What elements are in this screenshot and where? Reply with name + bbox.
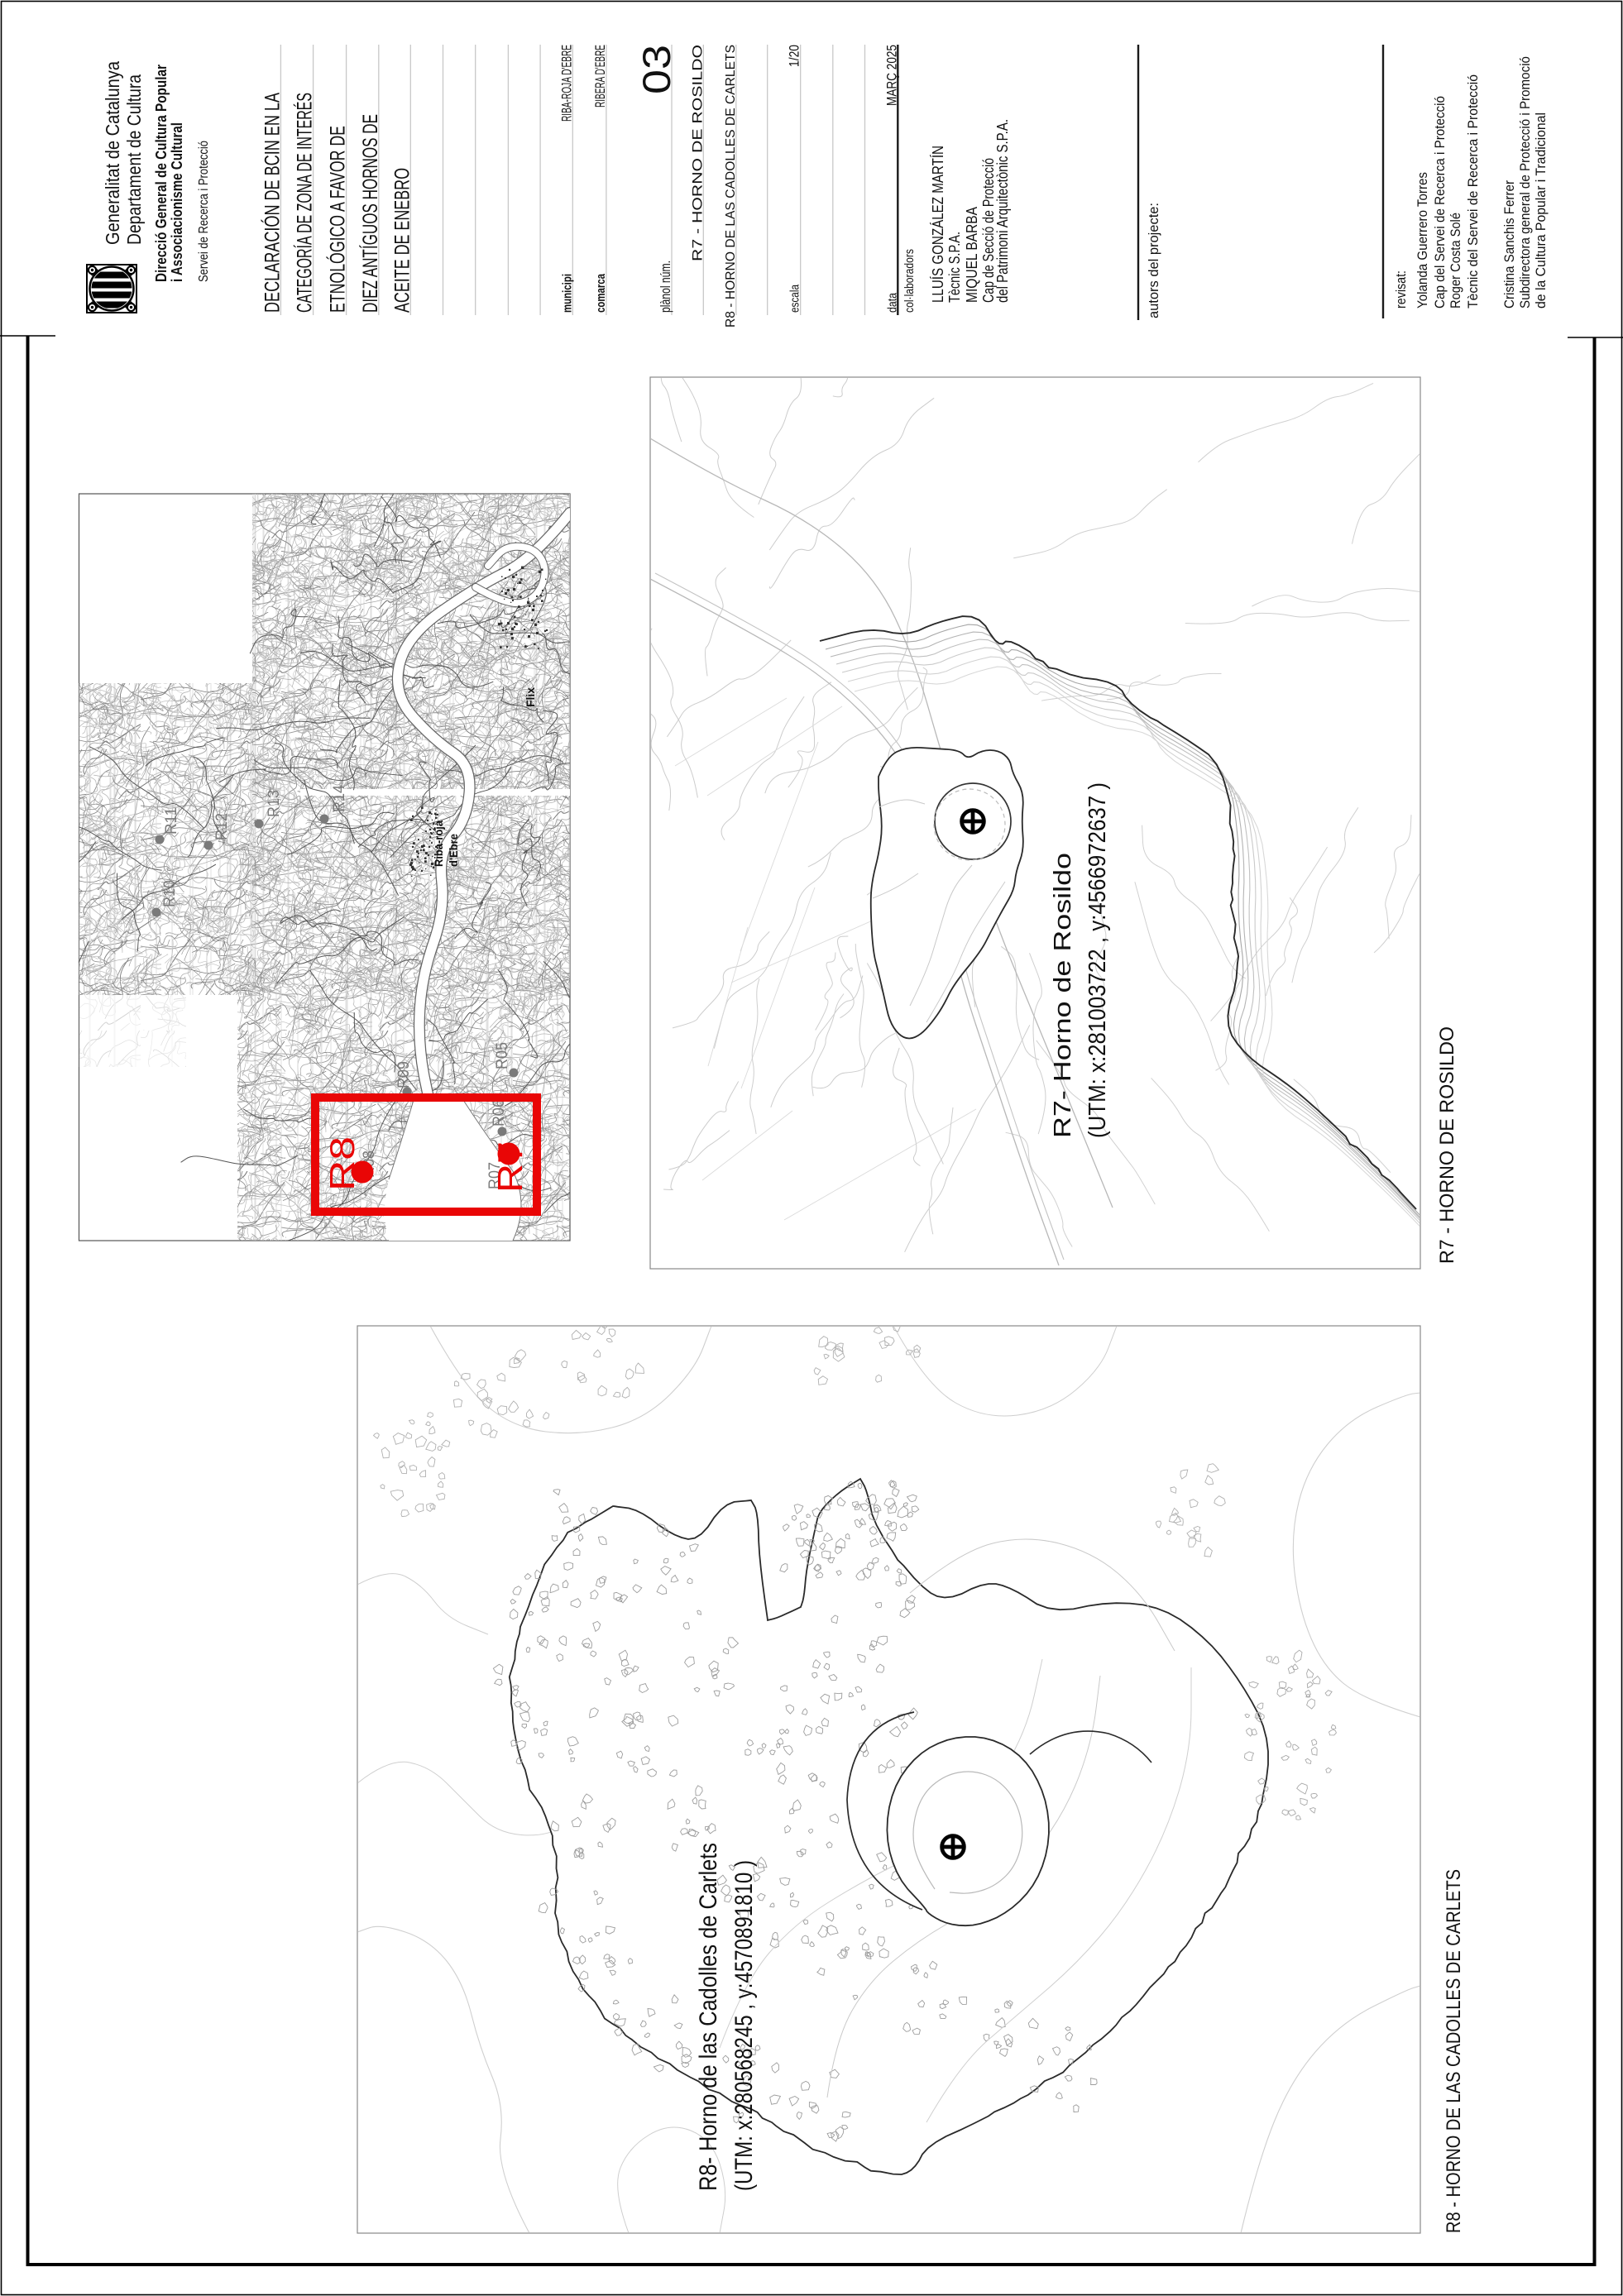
svg-text:R8- Horno de las Cadolles de C: R8- Horno de las Cadolles de Carlets	[695, 1843, 722, 2191]
svg-text:R12: R12	[213, 813, 231, 840]
svg-text:LLUÍS GONZÁLEZ MARTÍN: LLUÍS GONZÁLEZ MARTÍN	[930, 146, 946, 303]
svg-text:1/20: 1/20	[787, 45, 802, 67]
svg-text:Departament de Cultura: Departament de Cultura	[123, 74, 145, 245]
svg-text:municipi: municipi	[560, 274, 574, 313]
svg-text:DECLARACIÓN DE BCIN EN LA: DECLARACIÓN DE BCIN EN LA	[260, 93, 284, 313]
svg-text:Riba-roja: Riba-roja	[432, 820, 445, 867]
svg-text:col·laboradors: col·laboradors	[902, 249, 917, 313]
svg-text:CATEGORÍA DE ZONA DE INTERÉS: CATEGORÍA DE ZONA DE INTERÉS	[293, 93, 317, 313]
svg-text:plànol núm.: plànol núm.	[658, 261, 673, 313]
svg-text:03: 03	[634, 45, 678, 94]
svg-text:Cap del Servei de Recerca i Pr: Cap del Servei de Recerca i Protecció	[1432, 96, 1448, 309]
svg-text:Flix: Flix	[524, 687, 537, 707]
svg-text:DIEZ ANTÍGUOS HORNOS DE: DIEZ ANTÍGUOS HORNOS DE	[358, 114, 382, 313]
svg-text:MIQUEL BARBA: MIQUEL BARBA	[964, 207, 980, 303]
svg-text:Tècnic S.P.A.: Tècnic S.P.A.	[946, 232, 963, 303]
svg-text:escala: escala	[788, 284, 802, 313]
svg-text:ETNOLÓGICO A FAVOR DE: ETNOLÓGICO A FAVOR DE	[326, 126, 350, 313]
svg-text:Servei de Recerca i Protecció: Servei de Recerca i Protecció	[197, 141, 211, 282]
svg-text:R14: R14	[331, 785, 348, 812]
svg-text:d'Ebre: d'Ebre	[447, 834, 460, 867]
svg-text:data: data	[885, 292, 899, 313]
svg-text:R09: R09	[395, 1061, 413, 1088]
svg-text:R7: R7	[491, 1141, 529, 1193]
svg-text:R13: R13	[266, 790, 283, 817]
svg-text:Direcció General de Cultura Po: Direcció General de Cultura Popular	[153, 65, 170, 282]
svg-text:revisat:: revisat:	[1393, 270, 1409, 309]
svg-text:R05: R05	[494, 1042, 511, 1069]
svg-text:Tècnic del Servei de Recerca i: Tècnic del Servei de Recerca i Protecció	[1465, 74, 1481, 309]
svg-text:R11: R11	[163, 807, 180, 835]
svg-text:RIBA-ROJA D'EBRE: RIBA-ROJA D'EBRE	[558, 45, 574, 122]
svg-text:RIBERA D'EBRE: RIBERA D'EBRE	[592, 45, 608, 108]
svg-text:ACEITE DE ENEBRO: ACEITE DE ENEBRO	[390, 168, 414, 313]
svg-text:R10: R10	[161, 880, 179, 907]
svg-text:(UTM: x:280568245 , y:45708918: (UTM: x:280568245 , y:4570891810 )	[730, 1860, 758, 2191]
svg-text:Cristina Sanchis Ferrer: Cristina Sanchis Ferrer	[1501, 180, 1517, 309]
svg-text:R7- Horno de Rosildo: R7- Horno de Rosildo	[1050, 853, 1076, 1138]
svg-text:(UTM: x:281003722 , y:45669726: (UTM: x:281003722 , y:4566972637 )	[1084, 782, 1111, 1138]
svg-text:Generalitat de Catalunya: Generalitat de Catalunya	[102, 61, 123, 245]
svg-text:Yolanda Guerrero Torres: Yolanda Guerrero Torres	[1415, 172, 1430, 309]
svg-text:MARÇ 2025: MARÇ 2025	[883, 45, 899, 106]
svg-text:R06: R06	[491, 1099, 508, 1126]
svg-text:R8 - HORNO DE LAS CADOLLES DE: R8 - HORNO DE LAS CADOLLES DE CARLETS	[724, 45, 738, 328]
svg-text:R8 - HORNO DE LAS CADOLLES DE: R8 - HORNO DE LAS CADOLLES DE CARLETS	[1443, 1869, 1465, 2233]
svg-text:R8: R8	[323, 1136, 361, 1191]
svg-text:del Patrimoni Arquitectònic S.: del Patrimoni Arquitectònic S.P.A.	[994, 119, 1011, 303]
svg-text:Subdirectora general de Protec: Subdirectora general de Protecció i Prom…	[1517, 56, 1533, 309]
svg-text:autors del projecte:: autors del projecte:	[1146, 203, 1161, 318]
svg-text:comarca: comarca	[594, 274, 608, 313]
svg-text:R7 - HORNO DE ROSILDO: R7 - HORNO DE ROSILDO	[1436, 1026, 1458, 1264]
svg-text:i Associacionisme Cultural: i Associacionisme Cultural	[169, 122, 185, 282]
svg-text:Roger Costa Solé: Roger Costa Solé	[1448, 213, 1463, 309]
svg-text:R7 - HORNO DE ROSILDO: R7 - HORNO DE ROSILDO	[689, 45, 705, 261]
svg-text:de la Cultura Popular i Tradi: de la Cultura Popular i Tradicional	[1533, 112, 1549, 309]
